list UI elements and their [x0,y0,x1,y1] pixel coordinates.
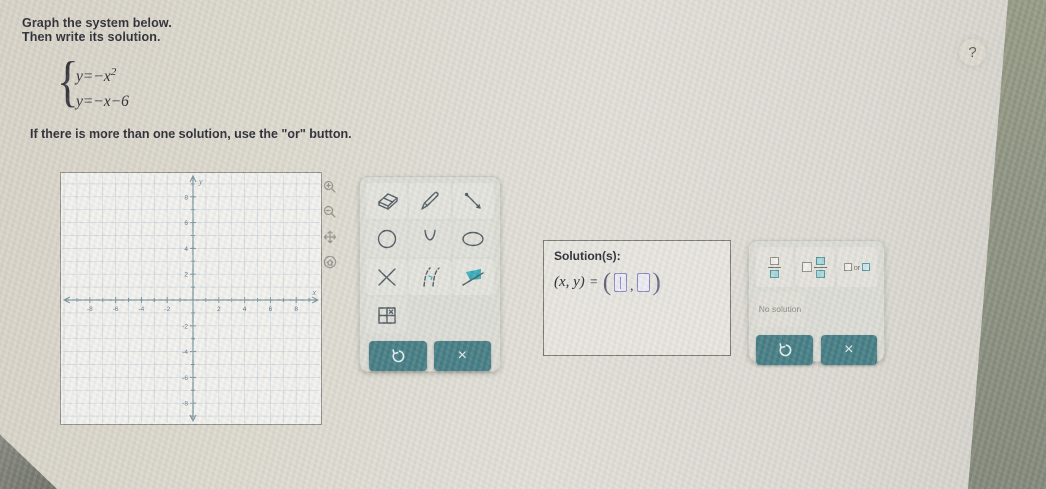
help-button[interactable]: ? [959,39,986,66]
no-solution-button[interactable]: No solution [756,292,804,327]
eraser-icon [374,190,400,212]
svg-text:-6: -6 [113,306,119,313]
tool-circle-button[interactable] [366,221,407,257]
svg-text:2: 2 [217,306,221,313]
svg-text:-4: -4 [139,306,145,313]
zoom-in-icon[interactable] [322,179,338,195]
equals-sign: = [590,275,598,291]
line-icon [462,190,484,212]
svg-text:8: 8 [294,306,298,313]
toolbar-undo-button[interactable] [369,341,427,371]
or-right-box-icon [862,263,870,271]
reset-view-icon[interactable] [322,254,338,270]
monitor-edge-right [960,0,1046,489]
answer-undo-button[interactable] [756,335,813,365]
equation-1: y=−x2 [76,66,129,86]
undo-icon [389,348,406,364]
tool-grid-spacer [453,297,494,333]
text-cursor [620,277,622,289]
cross-out-icon [375,265,399,289]
svg-text:4: 4 [243,306,247,313]
point-table-icon [374,302,400,328]
tool-dashed-curve-button[interactable] [409,259,450,295]
tool-region-fill-button[interactable] [453,259,494,295]
fraction-icon [768,257,781,278]
solution-label: Solution(s): [554,249,720,263]
or-button[interactable]: or [837,247,877,287]
tool-pencil-button[interactable] [409,183,450,219]
or-button-note: If there is more than one solution, use … [30,127,352,141]
y-answer-input[interactable] [637,273,650,292]
tool-ellipse-button[interactable] [453,221,494,257]
dashed-curve-icon [418,265,442,289]
solution-lhs: (x, y) [554,274,585,291]
or-button-text: or [854,263,861,272]
mixed-number-icon [802,257,827,278]
solution-expression: (x, y) = ( , ) [554,270,720,295]
equation-2: y=−x−6 [76,93,129,111]
tool-eraser-button[interactable] [366,183,407,219]
drawing-tool-palette: × [359,176,501,372]
graph-zoom-controls [322,179,340,270]
svg-text:6: 6 [269,306,273,313]
region-fill-icon [460,265,486,289]
svg-text:8: 8 [184,194,188,201]
pan-icon[interactable] [322,229,338,245]
equation-system: { y=−x2 y=−x−6 [57,55,129,111]
instruction-line-2: Then write its solution. [22,30,161,44]
pencil-icon [418,190,442,212]
tool-grid-spacer [409,297,450,333]
svg-text:-6: -6 [182,375,188,382]
circle-icon [375,227,399,251]
monitor-corner-bottom-left [0,427,60,489]
instruction-line-1: Graph the system below. [22,16,172,30]
fraction-button[interactable] [756,247,793,287]
svg-text:y: y [198,177,203,186]
answer-controls-panel: or No solution × [748,240,885,362]
svg-text:-8: -8 [87,306,93,313]
ellipse-icon [459,228,487,250]
undo-icon [776,342,793,358]
comma: , [630,279,634,295]
close-paren: ) [653,270,661,295]
tool-parabola-button[interactable] [409,221,450,257]
svg-text:6: 6 [184,220,188,227]
graph-canvas[interactable]: -8-6-4-224688642-2-4-6-8xy [60,172,322,425]
svg-text:-2: -2 [164,306,170,313]
svg-text:x: x [311,288,316,297]
solution-box: Solution(s): (x, y) = ( , ) [543,240,731,356]
open-paren: ( [603,270,611,295]
toolbar-close-button[interactable]: × [434,341,492,371]
parabola-icon [418,227,442,251]
mixed-number-button[interactable] [796,247,834,287]
svg-text:4: 4 [184,246,188,253]
tool-point-table-button[interactable] [366,297,407,333]
answer-close-button[interactable]: × [821,335,878,365]
tool-cross-out-button[interactable] [366,259,407,295]
svg-text:2: 2 [184,272,188,279]
graph-svg: -8-6-4-224688642-2-4-6-8xy [61,173,321,424]
zoom-out-icon[interactable] [322,204,338,220]
or-left-box-icon [844,263,852,271]
x-answer-input[interactable] [614,273,627,292]
system-brace: { [57,53,79,111]
svg-text:-2: -2 [182,323,188,330]
tool-line-button[interactable] [453,183,494,219]
svg-text:-4: -4 [182,349,188,356]
svg-text:-8: -8 [182,401,188,408]
